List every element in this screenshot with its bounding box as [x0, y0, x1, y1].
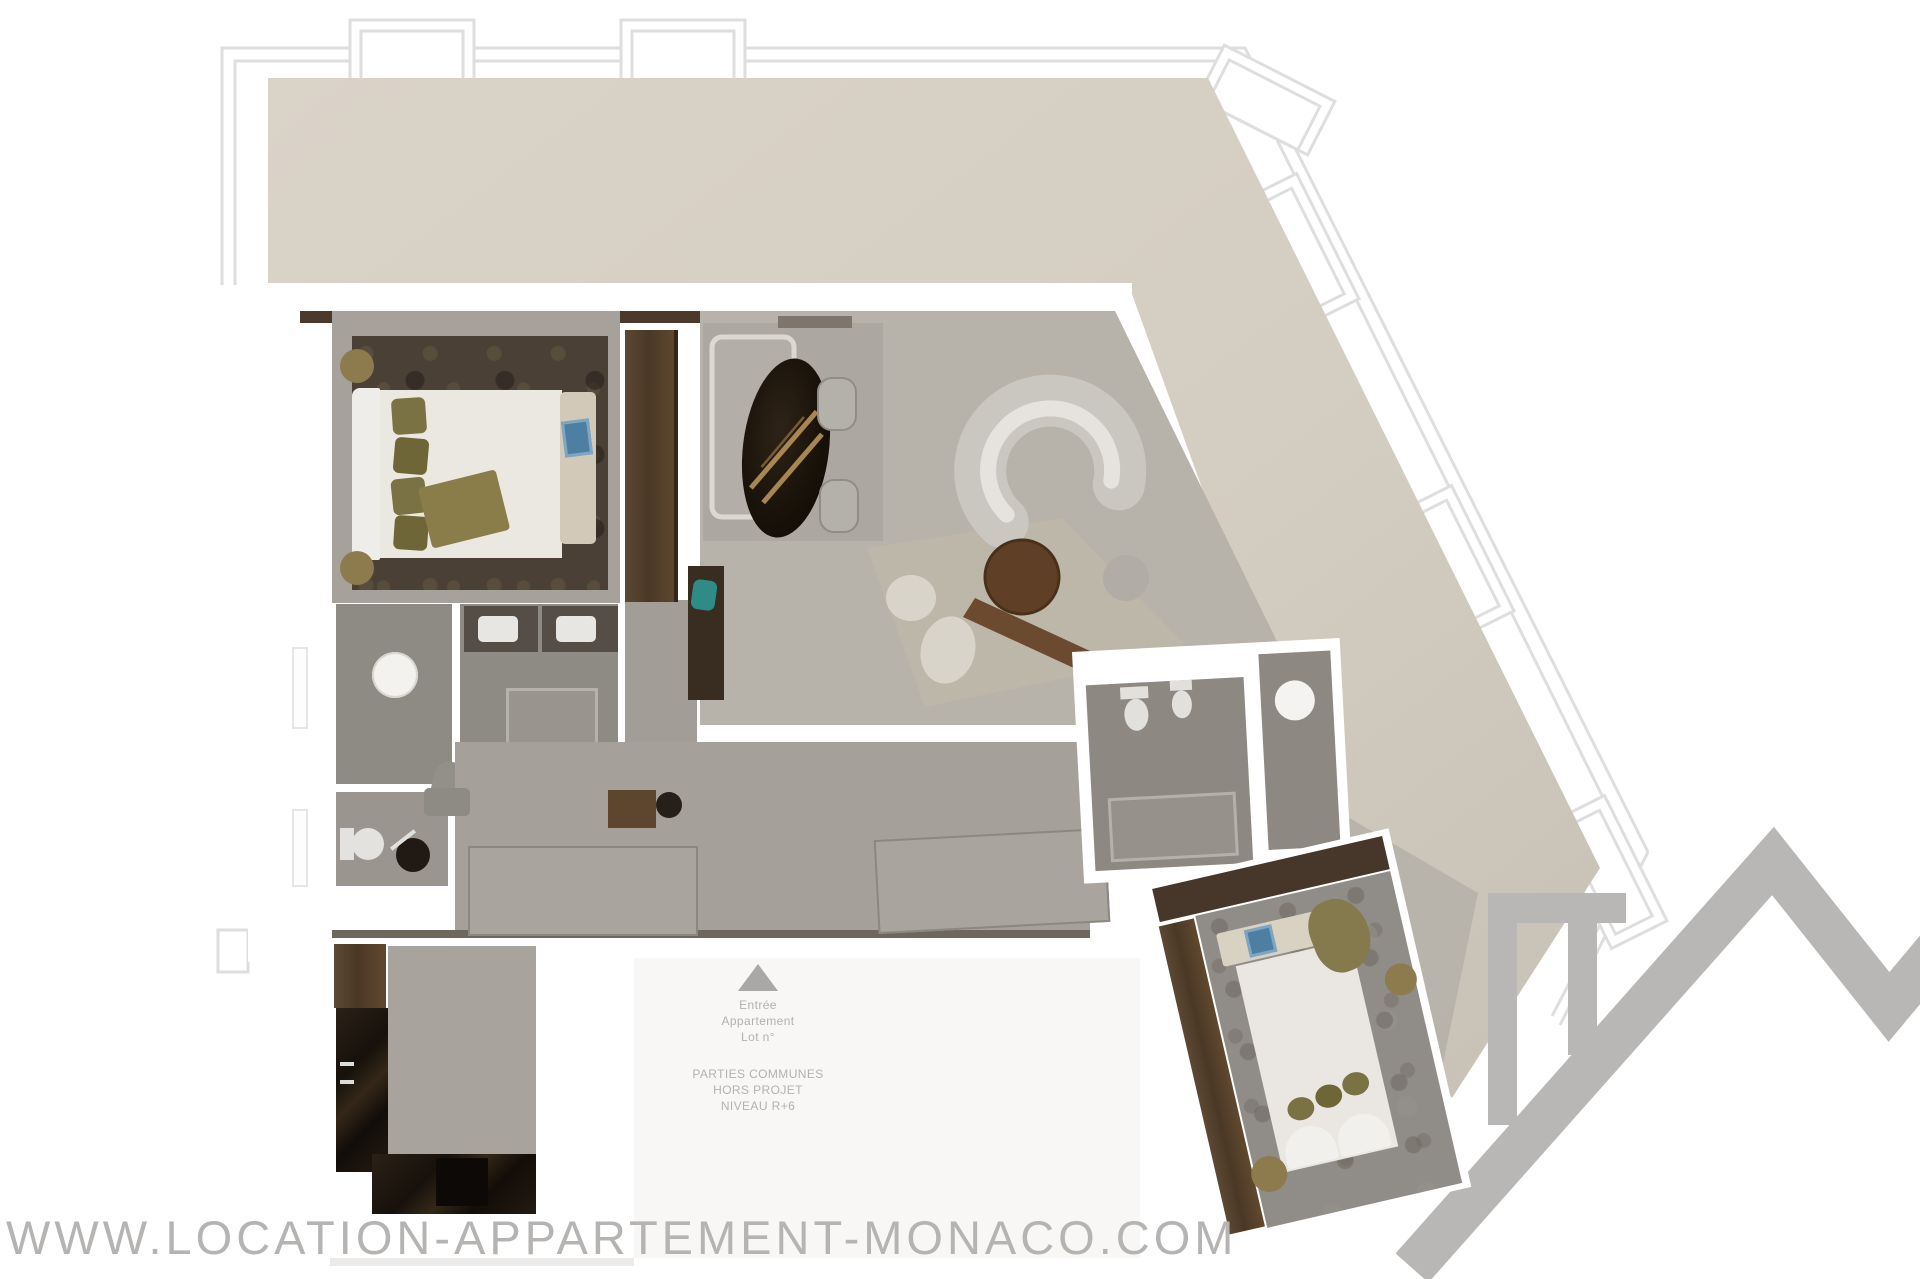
entry-line: Entrée — [648, 997, 868, 1013]
bathtub2 — [1108, 792, 1239, 863]
floorplan-page: Entrée Appartement Lot n° PARTIES COMMUN… — [0, 0, 1920, 1279]
hall-black-chair — [656, 792, 682, 818]
gray-pouf — [1103, 555, 1149, 601]
bed1-bench — [560, 392, 596, 544]
sink — [478, 616, 518, 642]
common-area-line: HORS PROJET — [648, 1082, 868, 1098]
common-area-annotation: PARTIES COMMUNES HORS PROJET NIVEAU R+6 — [648, 1066, 868, 1114]
counter-handle — [340, 1080, 354, 1084]
desk-chair-teal — [690, 578, 718, 611]
bed1-pillow — [391, 397, 427, 435]
watermark-text: WWW.LOCATION-APPARTEMENT-MONACO.COM — [6, 1210, 1237, 1265]
sink — [556, 616, 596, 642]
wardrobe-column — [625, 330, 678, 602]
toilet — [1120, 686, 1149, 699]
hall-rug — [874, 828, 1111, 934]
counter-handle — [340, 1062, 354, 1066]
cream-pouf — [886, 575, 936, 621]
common-area-line: NIVEAU R+6 — [648, 1098, 868, 1114]
hall-console — [608, 790, 656, 828]
cooktop — [436, 1158, 488, 1206]
entry-line: Appartement — [648, 1013, 868, 1029]
hall-gray-chair — [424, 788, 470, 816]
hall-threshold — [332, 930, 1090, 938]
gold-pouf — [340, 349, 374, 383]
bed1-headboard — [352, 388, 380, 560]
entry-line: Lot n° — [648, 1029, 868, 1045]
wall-shelf — [778, 316, 852, 328]
gold-pouf — [340, 551, 374, 585]
bed1-pillow — [393, 515, 429, 551]
wc-toilet-bowl — [352, 828, 384, 860]
shower-drain — [372, 652, 418, 698]
closet-passage-floor — [625, 600, 697, 742]
hall-rug — [468, 846, 698, 936]
common-area-line: PARTIES COMMUNES — [648, 1066, 868, 1082]
bed1-pillow — [392, 437, 429, 476]
kitchen-floor — [388, 946, 536, 1158]
bed1-laptop-blue — [561, 418, 593, 457]
kitchen-counter-left — [336, 1008, 388, 1172]
floorplan-svg — [0, 0, 1920, 1279]
kitchen-wood-cabinet — [334, 944, 386, 1008]
coffee-table — [985, 540, 1059, 614]
bidet — [1170, 680, 1192, 691]
entry-annotation: Entrée Appartement Lot n° — [648, 997, 868, 1045]
